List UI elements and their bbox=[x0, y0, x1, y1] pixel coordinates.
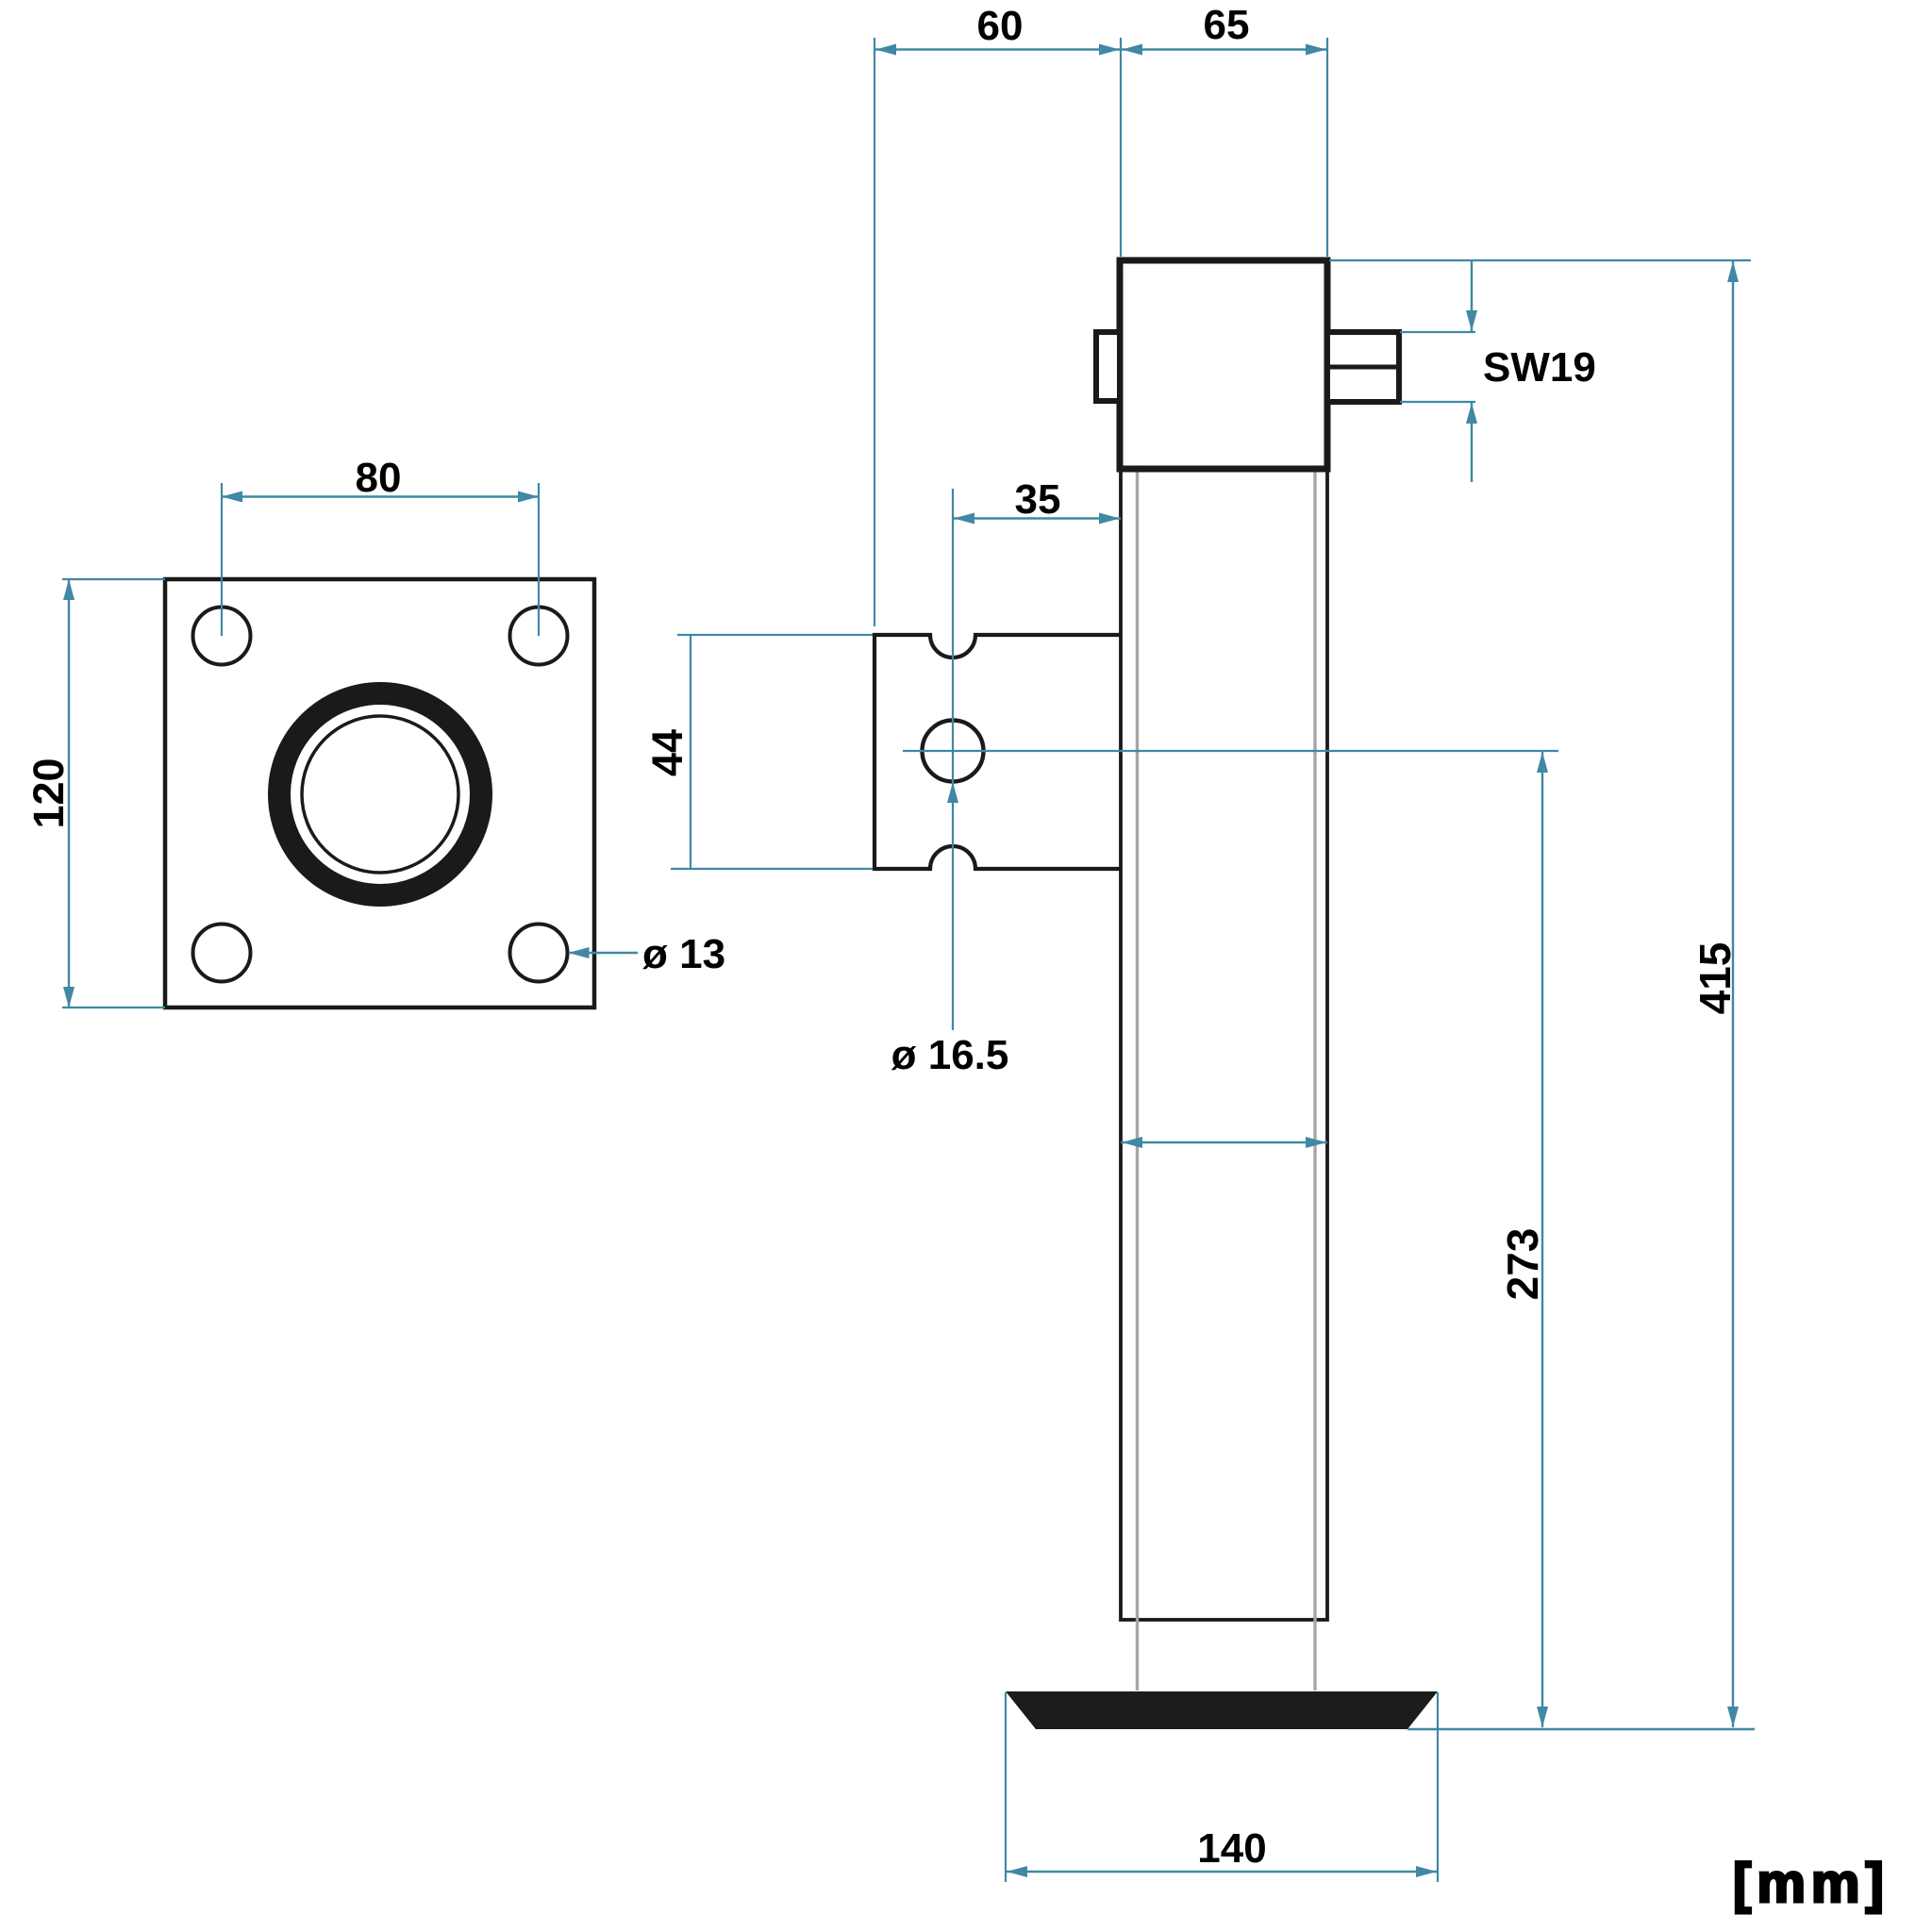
svg-text:60: 60 bbox=[977, 3, 1024, 49]
svg-text:140: 140 bbox=[1197, 1825, 1266, 1872]
svg-text:65: 65 bbox=[1204, 2, 1250, 48]
svg-text:SW19: SW19 bbox=[1483, 344, 1596, 391]
svg-text:120: 120 bbox=[25, 758, 73, 828]
svg-text:415: 415 bbox=[1690, 942, 1740, 1015]
svg-text:ø 13: ø 13 bbox=[642, 931, 725, 977]
svg-text:ø 16.5: ø 16.5 bbox=[891, 1032, 1009, 1078]
svg-text:273: 273 bbox=[1498, 1228, 1547, 1301]
svg-text:80: 80 bbox=[356, 455, 402, 501]
svg-text:35: 35 bbox=[1015, 476, 1061, 523]
svg-text:44: 44 bbox=[643, 729, 691, 776]
svg-text:[mm]: [mm] bbox=[1733, 1853, 1890, 1914]
